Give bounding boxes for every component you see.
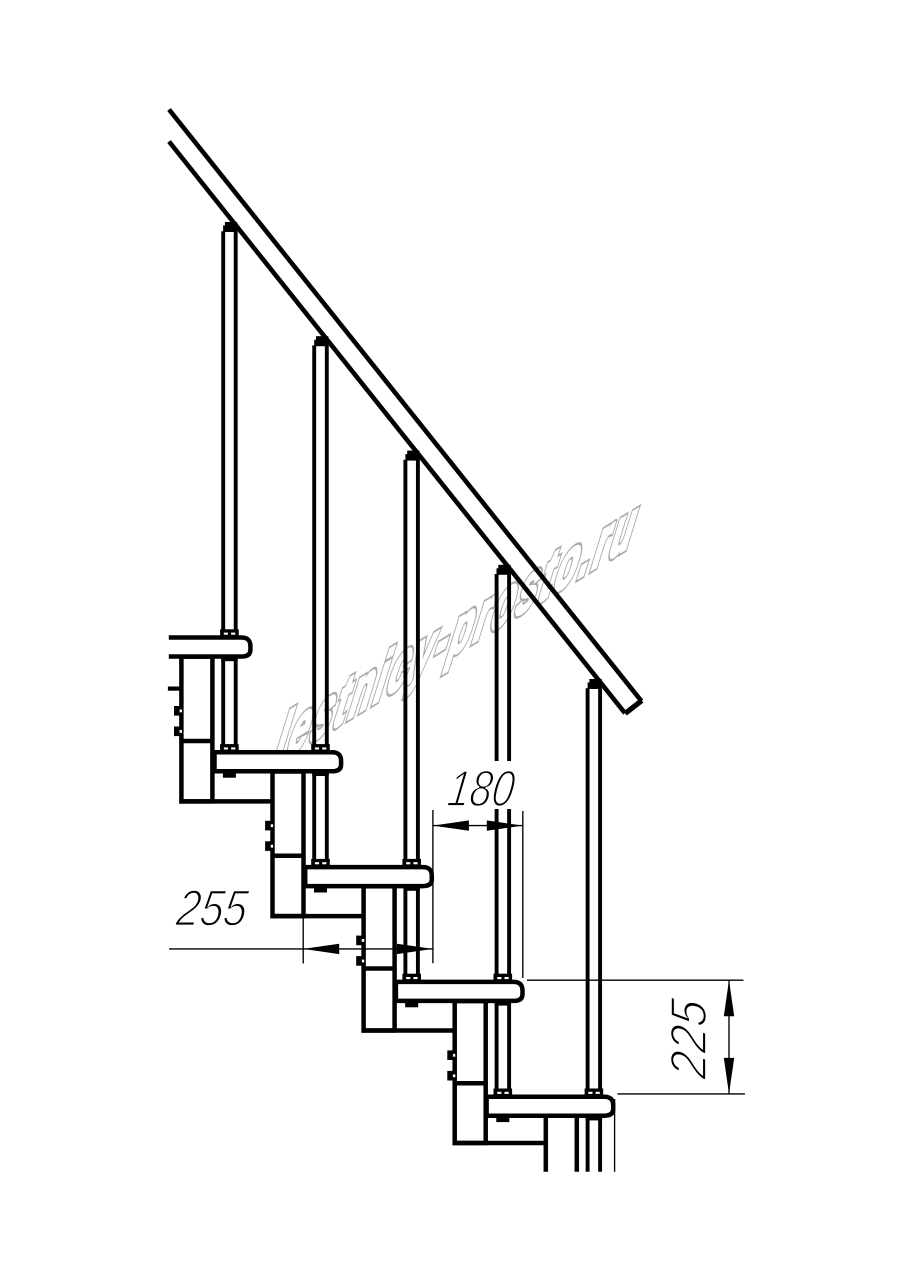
svg-text:255: 255 <box>173 880 252 937</box>
svg-text:180: 180 <box>444 760 518 817</box>
svg-text:225: 225 <box>660 995 717 1082</box>
